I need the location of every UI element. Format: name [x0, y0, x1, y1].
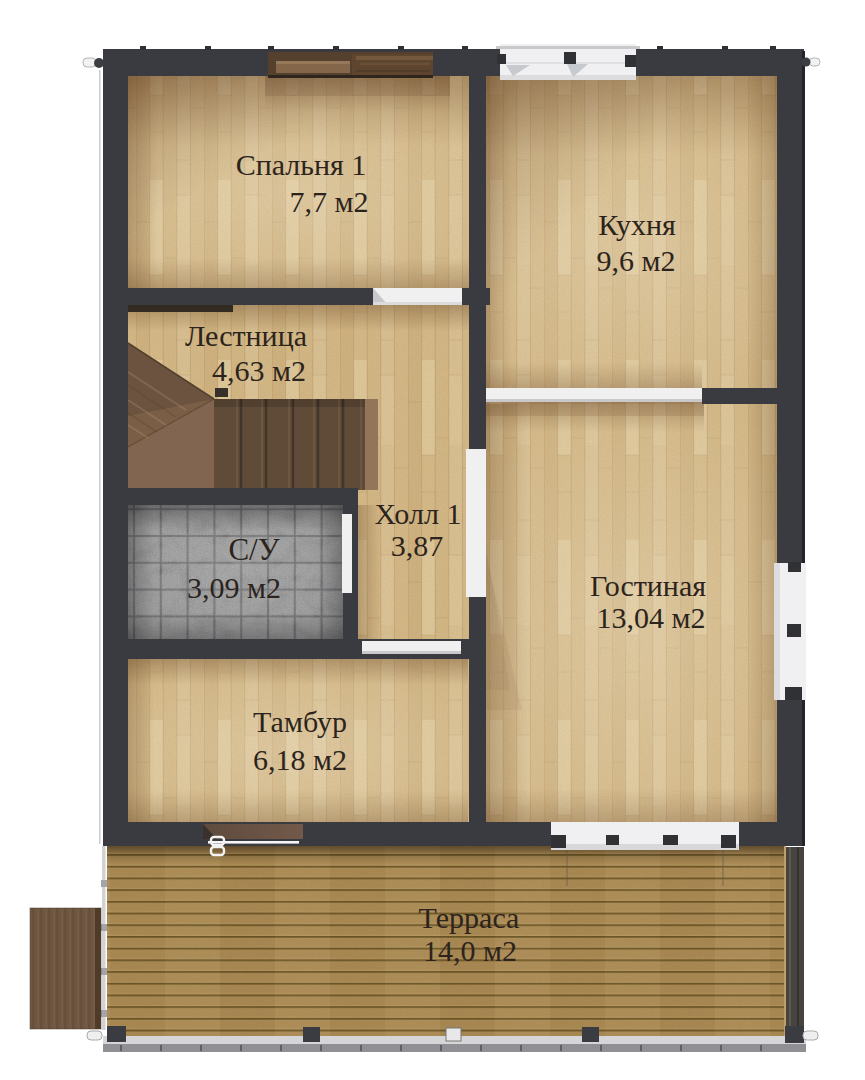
svg-text:Спальня 1: Спальня 1: [236, 148, 367, 181]
svg-text:Терраса: Терраса: [419, 901, 520, 934]
svg-text:3,09 м2: 3,09 м2: [187, 571, 281, 604]
svg-text:Кухня: Кухня: [598, 208, 676, 241]
svg-text:Гостиная: Гостиная: [590, 569, 706, 602]
svg-text:13,04 м2: 13,04 м2: [597, 601, 706, 634]
svg-text:С/У: С/У: [228, 532, 279, 567]
svg-text:4,63 м2: 4,63 м2: [212, 354, 306, 387]
svg-text:3,87: 3,87: [391, 529, 444, 562]
svg-text:14,0 м2: 14,0 м2: [423, 934, 517, 967]
svg-text:9,6 м2: 9,6 м2: [597, 244, 676, 277]
svg-text:Тамбур: Тамбур: [253, 705, 347, 738]
svg-text:Лестница: Лестница: [185, 319, 307, 352]
svg-text:6,18 м2: 6,18 м2: [253, 743, 347, 776]
svg-text:Холл 1: Холл 1: [375, 497, 462, 530]
svg-text:7,7 м2: 7,7 м2: [290, 185, 369, 218]
